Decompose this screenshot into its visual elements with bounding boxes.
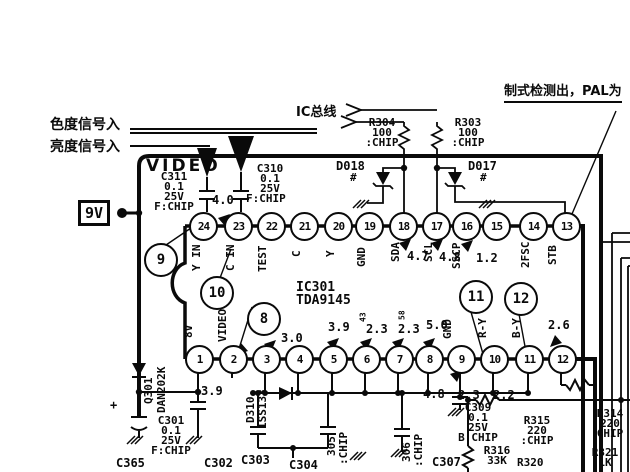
cap-c305-type: :CHIP: [337, 426, 350, 470]
system-detect-label: 制式检测出，PAL为: [504, 84, 622, 103]
junction-dot: [117, 208, 127, 218]
ic-pin-7: 7: [385, 345, 414, 374]
junction-dot: [525, 390, 531, 396]
ic-bus-label: IC总线: [296, 105, 336, 120]
resistor-r303-label: R303 100 :CHIP: [446, 118, 490, 148]
diode-q301-part: DAN202K: [155, 350, 168, 430]
resistor-r315-label: R315 220 :CHIP: [517, 416, 557, 446]
input-signal-lines: [130, 129, 317, 146]
voltage-below9: 2.3: [458, 388, 480, 402]
junction-dot: [290, 445, 296, 451]
ic-pin-2: 2: [219, 345, 248, 374]
voltage-pin23: 4.0: [212, 193, 234, 207]
resistor-r321-label: R321 1K: [587, 448, 623, 468]
pin-1-label: 8V: [182, 318, 195, 344]
pin-21-label: C: [290, 246, 303, 262]
pin-24-label: Y IN: [190, 238, 203, 278]
callout-9: 9: [144, 243, 178, 277]
cap-c304-label: C304: [289, 460, 318, 470]
ic-pin-17: 17: [422, 212, 451, 241]
cap-c365-polarity: +: [110, 400, 117, 410]
voltage-pin4: 3.0: [281, 331, 303, 345]
junction-dot: [618, 397, 624, 403]
voltage-below8: 4.8: [423, 387, 445, 401]
zener-d018-label: D018: [336, 161, 365, 171]
voltage-below10: 2.2: [493, 388, 515, 402]
ground-icon: [127, 436, 143, 444]
zener-d017-label: D017: [468, 161, 497, 171]
voltage-pin18: 4.7: [407, 249, 429, 263]
pin-11-label: B-Y: [510, 312, 523, 344]
ic-pin-3: 3: [252, 345, 281, 374]
cap-c310-label: C310 0.1 25V: [248, 164, 292, 194]
cap-c311-label: C311 0.1 25V F:CHIP: [150, 172, 198, 212]
cap-c303-label: C303: [241, 455, 270, 465]
ic-pin-12: 12: [548, 345, 577, 374]
voltage-pin16: 1.2: [476, 251, 498, 265]
resistor-r320-label: R320: [517, 458, 544, 468]
bus-arrow-icon: [341, 116, 356, 128]
ground-icon: [353, 200, 369, 208]
schematic-page: 色度信号入 亮度信号入 IC总线 制式检测出，PAL为 9V VIDEO C31…: [0, 0, 630, 472]
diode-q301-ref: Q301: [142, 352, 155, 430]
zener-d018-icon: [376, 172, 390, 185]
ic-pin-10: 10: [480, 345, 509, 374]
supply-9v-badge: 9V: [78, 200, 110, 226]
junction-dot: [399, 390, 405, 396]
zener-d018-mark: #: [350, 173, 357, 183]
pin-19-label: GND: [355, 240, 368, 274]
voltage-pin8: 5.0: [426, 318, 448, 332]
ic-pin-5: 5: [319, 345, 348, 374]
ic-pin-18: 18: [389, 212, 418, 241]
voltage-pin7-small: 58: [397, 306, 407, 324]
voltage-pin17: 4.8: [439, 250, 461, 264]
resistor-r304-label: R304 100 :CHIP: [360, 118, 404, 148]
junction-dot: [434, 165, 440, 171]
cap-c307-label: C307: [432, 457, 461, 467]
ic-pin-13: 13: [552, 212, 581, 241]
chroma-input-label: 色度信号入: [50, 118, 120, 133]
pin-10-label: R-Y: [476, 312, 489, 344]
voltage-pin5: 3.9: [328, 320, 350, 334]
resistor-r314-label: R314 220 CHIP: [590, 409, 630, 439]
voltage-pin6: 2.3: [366, 322, 388, 336]
ic-pin-23: 23: [224, 212, 253, 241]
ic-pin-8: 8: [415, 345, 444, 374]
callout-12: 12: [504, 282, 538, 316]
junction-dot: [295, 390, 301, 396]
pin-23-label: C IN: [224, 238, 237, 278]
luma-input-label: 亮度信号入: [50, 140, 120, 155]
bus-arrow-icon: [346, 104, 361, 116]
ic-pin-4: 4: [285, 345, 314, 374]
ic-pin-15: 15: [482, 212, 511, 241]
ic-pin-14: 14: [519, 212, 548, 241]
ic-pin-20: 20: [324, 212, 353, 241]
ic-pin-24: 24: [189, 212, 218, 241]
callout-10: 10: [200, 276, 234, 310]
cap-c365-label: C365: [116, 458, 145, 468]
callout-11: 11: [459, 280, 493, 314]
voltage-pin7: 2.3: [398, 322, 420, 336]
pin-22-label: TEST: [256, 236, 269, 282]
cap-c302-label: C302: [204, 458, 233, 468]
pin-18-label: SDA: [389, 236, 402, 268]
ic-pin-19: 19: [355, 212, 384, 241]
ic-reference-label: IC301 TDA9145: [296, 281, 351, 307]
ic-pin-21: 21: [290, 212, 319, 241]
ic-pin-16: 16: [452, 212, 481, 241]
cap-c310-type: F:CHIP: [246, 194, 286, 204]
ic-pin-9: 9: [447, 345, 476, 374]
resistor-r316-label: R316 33K: [479, 446, 515, 466]
diode-d310-icon: [279, 387, 292, 400]
junction-dot: [136, 210, 142, 216]
zener-d017-icon: [448, 172, 462, 185]
pin-20-label: Y: [324, 246, 337, 262]
ground-icon: [350, 452, 366, 460]
junction-dot: [329, 390, 335, 396]
ic-pin-6: 6: [352, 345, 381, 374]
voltage-pin2: 3.9: [201, 384, 223, 398]
voltage-pin12: 2.6: [548, 318, 570, 332]
diode-d310-part: 1SS133: [256, 384, 269, 434]
zener-d017-mark: #: [480, 173, 487, 183]
pin-13-label: STB: [546, 238, 559, 272]
junction-dot: [362, 390, 368, 396]
ic-pin-11: 11: [515, 345, 544, 374]
voltage-pin6-small: 43: [358, 308, 368, 326]
ic-pin-1: 1: [185, 345, 214, 374]
callout-8: 8: [247, 302, 281, 336]
ic-pin-22: 22: [257, 212, 286, 241]
junction-dot: [401, 165, 407, 171]
cap-c309-label: C309 0.1 25V B:CHIP: [455, 403, 501, 443]
cap-c306-type: :CHIP: [412, 428, 425, 472]
